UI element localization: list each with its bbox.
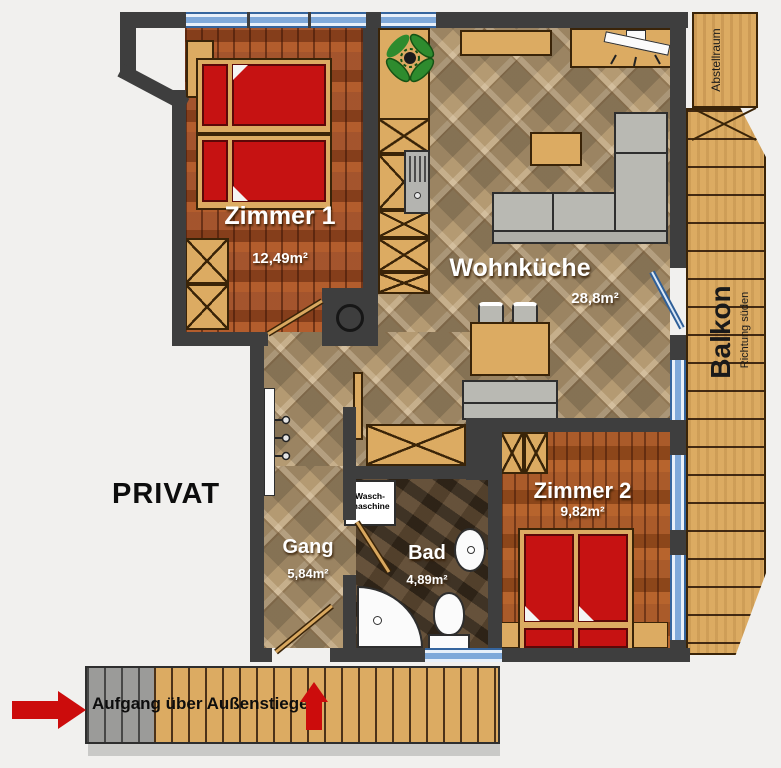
sofa-seam [616, 152, 666, 154]
wall-right-4 [670, 530, 686, 555]
window-top-kitchen [381, 12, 436, 28]
cooktop [404, 150, 430, 214]
abstellraum-label: Abstellraum [709, 5, 723, 115]
gang-area: 5,84m² [258, 566, 358, 581]
bed-frame [196, 134, 332, 210]
chair [478, 302, 504, 324]
double-bed-frame [518, 528, 634, 650]
wall-bad-left-lower [343, 575, 356, 662]
closet [500, 432, 524, 474]
wall-right-3 [670, 420, 686, 455]
cooktop-grill [409, 156, 426, 182]
zimmer2-label: Zimmer 2 [500, 478, 665, 504]
window-mullion [308, 12, 311, 28]
wall-bad-top [356, 466, 502, 479]
window-right-mid [670, 455, 686, 530]
window-top-zimmer1 [186, 12, 366, 28]
sofa-horizontal-arm [492, 192, 616, 232]
mattress [524, 534, 574, 622]
window-bottom-bad [425, 648, 502, 662]
window-right-zimmer2 [670, 555, 686, 640]
blanket-fold [579, 606, 594, 621]
dining-table [470, 322, 550, 376]
mattress [232, 140, 326, 202]
arrow-up-head-icon [300, 682, 328, 702]
kitchen-cabinet [378, 210, 430, 238]
sofa-seam [552, 194, 554, 230]
wall-gang-left [250, 332, 264, 662]
kitchen-cabinet [378, 118, 430, 154]
sofa-vertical-arm [614, 112, 668, 232]
blanket-fold [233, 186, 248, 201]
mattress [578, 534, 628, 622]
stairs-shadow [88, 744, 500, 756]
pillow [202, 64, 228, 126]
kitchen-cabinet [378, 272, 430, 294]
zimmer1-label: Zimmer 1 [195, 202, 365, 231]
stairs-label: Aufgang über Außenstiege [92, 694, 309, 714]
wall-bottom-right [502, 648, 690, 662]
dining-bench [462, 380, 558, 420]
pillow [524, 628, 574, 648]
cooktop-knob-icon [414, 192, 421, 199]
floorplan: Wasch- maschine [0, 0, 781, 768]
wall-right-1 [670, 28, 686, 268]
hall-cabinet [366, 424, 466, 466]
window-mullion [247, 12, 250, 28]
window-right-wohnkueche [670, 360, 686, 420]
mattress [232, 64, 326, 126]
balkon-label: Balkon [705, 232, 739, 432]
abstellraum-floor [692, 12, 758, 108]
wall-zimmer2-left [488, 418, 502, 648]
blanket-fold [233, 65, 248, 80]
balcony-door-opening [670, 268, 686, 335]
pillow [578, 628, 628, 648]
wall-bottom-left [250, 648, 272, 662]
coffee-table [530, 132, 582, 166]
bed-frame [196, 58, 332, 134]
privat-label: PRIVAT [112, 478, 220, 511]
pillow [202, 140, 228, 202]
blanket-fold [525, 606, 540, 621]
wohnkueche-area: 28,8m² [535, 290, 655, 307]
gang-label: Gang [258, 536, 358, 559]
drain-icon [373, 616, 382, 625]
balkon-direction-label: Richtung süden [739, 255, 753, 405]
wall-right-2 [670, 335, 686, 360]
zimmer1-area: 12,49m² [195, 250, 365, 267]
arrow-right-head-icon [58, 691, 86, 729]
sofa-backrest [492, 230, 668, 244]
wall-right-5 [670, 640, 686, 662]
zimmer2-area: 9,82m² [500, 503, 665, 519]
bad-label: Bad [382, 542, 472, 565]
wall-zimmer1-right [363, 28, 378, 290]
bad-area: 4,89m² [382, 572, 472, 587]
wall-bad-left-upper [343, 407, 356, 520]
kitchen-cabinet [378, 238, 430, 272]
wohnkueche-label: Wohnküche [425, 254, 615, 283]
sideboard [460, 30, 552, 56]
wardrobe [185, 284, 229, 330]
arrow-right-icon [12, 701, 58, 719]
closet [524, 432, 548, 474]
wall-zimmer1-left [172, 90, 186, 346]
stove-unit [322, 288, 378, 346]
toilet-bowl [433, 592, 465, 636]
arrow-up-icon [306, 702, 322, 730]
bench-seam [464, 402, 556, 404]
coat-rack [264, 388, 275, 496]
stove-ring-icon [336, 304, 364, 332]
